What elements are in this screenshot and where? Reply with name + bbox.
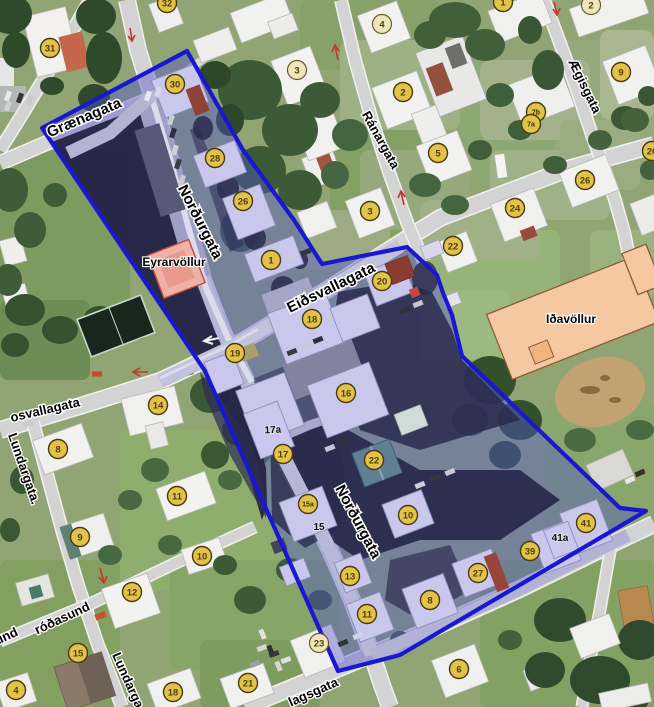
svg-text:15: 15: [73, 648, 84, 659]
svg-text:18: 18: [168, 687, 179, 698]
svg-text:2: 2: [588, 0, 593, 11]
svg-text:15a: 15a: [302, 502, 314, 509]
svg-text:9: 9: [77, 532, 82, 543]
svg-text:32: 32: [162, 0, 173, 9]
svg-text:30: 30: [170, 79, 181, 90]
svg-text:17a: 17a: [264, 425, 282, 437]
svg-text:4: 4: [379, 19, 385, 30]
svg-text:8: 8: [427, 595, 432, 606]
svg-text:Eyrarvöllur: Eyrarvöllur: [142, 255, 206, 269]
svg-text:7a: 7a: [527, 122, 535, 129]
svg-text:5: 5: [435, 148, 441, 159]
svg-text:31: 31: [45, 43, 56, 54]
svg-text:10: 10: [403, 510, 414, 521]
svg-text:16: 16: [341, 388, 352, 399]
svg-text:17: 17: [278, 449, 289, 460]
svg-text:2: 2: [400, 87, 405, 98]
svg-text:13: 13: [345, 571, 356, 582]
svg-text:6: 6: [456, 664, 461, 675]
svg-text:11: 11: [172, 491, 183, 502]
svg-text:1: 1: [268, 255, 274, 266]
svg-text:22: 22: [448, 241, 459, 252]
svg-text:3: 3: [367, 206, 372, 217]
svg-text:28: 28: [210, 153, 221, 164]
svg-text:19: 19: [230, 348, 241, 359]
svg-text:21: 21: [243, 678, 254, 689]
svg-text:3: 3: [294, 65, 299, 76]
svg-text:24: 24: [510, 203, 521, 214]
svg-text:12: 12: [127, 587, 138, 598]
svg-text:15: 15: [313, 522, 325, 533]
svg-text:26: 26: [647, 146, 654, 157]
svg-text:26: 26: [238, 196, 249, 207]
svg-text:41: 41: [581, 518, 592, 529]
svg-text:23: 23: [314, 638, 325, 649]
svg-text:39: 39: [525, 546, 536, 557]
svg-text:22: 22: [369, 455, 380, 466]
svg-text:26: 26: [580, 175, 591, 186]
svg-text:Iðavöllur: Iðavöllur: [546, 312, 596, 326]
svg-text:11: 11: [362, 609, 373, 620]
svg-text:10: 10: [197, 551, 208, 562]
svg-text:1: 1: [500, 0, 506, 8]
svg-text:4: 4: [13, 685, 19, 696]
svg-text:8: 8: [55, 444, 60, 455]
svg-text:20: 20: [377, 276, 388, 287]
svg-text:14: 14: [153, 400, 164, 411]
svg-text:41a: 41a: [552, 533, 569, 544]
svg-text:9: 9: [618, 67, 623, 78]
svg-text:18: 18: [307, 314, 318, 325]
svg-text:27: 27: [473, 568, 484, 579]
